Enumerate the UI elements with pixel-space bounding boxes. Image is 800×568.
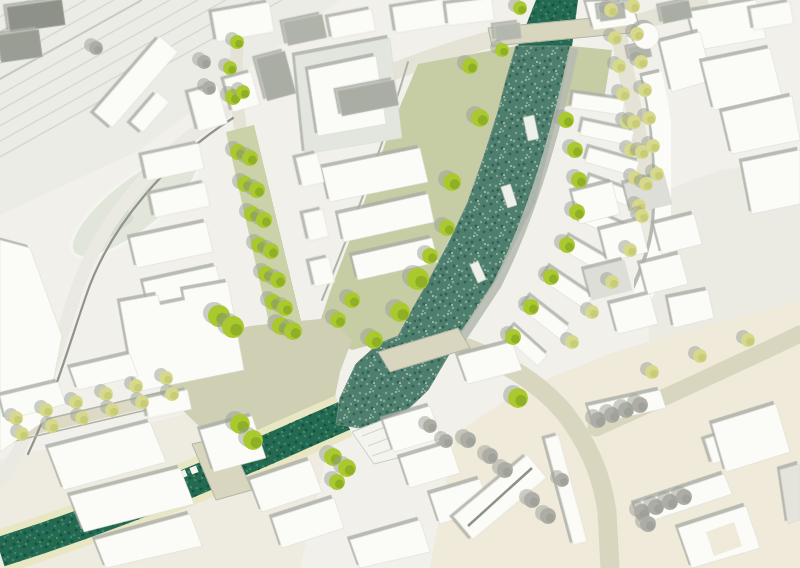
tree-crown-accent <box>503 468 512 477</box>
tree-crown-accent <box>610 280 618 288</box>
tree-crown-accent <box>746 338 754 346</box>
tree-crown-accent <box>50 424 58 432</box>
tree-crown-accent <box>255 188 264 197</box>
tree-crown-accent <box>549 275 558 284</box>
tree-crown-accent <box>682 495 691 504</box>
tree-crown-accent <box>372 337 382 347</box>
masterplan-svg <box>0 0 800 568</box>
tree-crown-accent <box>621 92 629 100</box>
tree-crown-accent <box>336 318 345 327</box>
tree-crown-accent <box>44 408 52 416</box>
tree-crown-accent <box>617 64 625 72</box>
tree-crown-accent <box>20 432 28 440</box>
tree-crown-accent <box>628 248 636 256</box>
tree-crown-accent <box>564 118 573 127</box>
tree-crown-accent <box>74 400 82 408</box>
tree-crown-accent <box>428 254 437 263</box>
tree-crown-accent <box>631 4 639 12</box>
tree-crown-accent <box>518 6 526 14</box>
tree-crown-accent <box>202 60 210 68</box>
tree-crown-accent <box>516 395 527 406</box>
tree-crown-accent <box>500 48 508 56</box>
tree-crown-accent <box>590 310 598 318</box>
tree-crown-accent <box>560 478 568 486</box>
tree-crown-accent <box>647 116 655 124</box>
tree-crown-accent <box>104 392 112 400</box>
tree-crown-accent <box>164 376 172 384</box>
tree-crown-accent <box>635 32 643 40</box>
tree-crown-accent <box>170 392 178 400</box>
tree-crown-accent <box>80 416 88 424</box>
tree-crown-accent <box>110 408 118 416</box>
tree-crown-accent <box>415 276 427 288</box>
tree-crown-accent <box>335 480 344 489</box>
tree-crown-accent <box>248 156 257 165</box>
tree-crown-accent <box>640 214 648 222</box>
tree-crown-accent <box>478 115 488 125</box>
building <box>0 29 43 63</box>
tree-crown-accent <box>639 60 647 68</box>
tree-crown-accent <box>445 226 454 235</box>
tree-crown-accent <box>466 438 475 447</box>
tree-crown-accent <box>450 179 460 189</box>
tree-crown-accent <box>283 306 292 315</box>
tree-crown-accent <box>640 150 648 158</box>
tree-crown-accent <box>613 36 621 44</box>
tree-crown-accent <box>251 437 262 448</box>
tree-crown-accent <box>350 298 359 307</box>
tree-crown-accent <box>398 309 409 320</box>
tree-crown-accent <box>632 120 640 128</box>
tree-crown-accent <box>529 305 538 314</box>
building <box>494 22 522 41</box>
tree-crown-accent <box>643 88 651 96</box>
tree-crown-accent <box>530 498 539 507</box>
tree-crown-accent <box>235 40 243 48</box>
tree-crown-accent <box>575 210 584 219</box>
tree-crown-accent <box>698 354 706 362</box>
tree-crown-accent <box>468 64 477 73</box>
tree-crown-accent <box>262 218 271 227</box>
tree-crown-accent <box>546 514 555 523</box>
tree-crown-accent <box>565 243 574 252</box>
tree-crown-accent <box>570 340 578 348</box>
tree-crown-accent <box>269 249 278 258</box>
tree-crown-accent <box>230 324 242 336</box>
tree-crown-accent <box>650 370 658 378</box>
tree-crown-accent <box>140 400 148 408</box>
tree-crown-accent <box>276 278 285 287</box>
tree-crown-accent <box>609 8 617 16</box>
tree-crown-accent <box>94 46 102 54</box>
tree-crown-accent <box>651 144 659 152</box>
tree-crown-accent <box>291 328 301 338</box>
tree-crown-accent <box>638 403 647 412</box>
tree-crown-accent <box>207 86 215 94</box>
tree-crown-accent <box>428 424 436 432</box>
tree-crown-accent <box>345 465 355 475</box>
tree-crown-accent <box>573 148 582 157</box>
tree-crown-accent <box>644 182 652 190</box>
tree-crown-accent <box>134 384 142 392</box>
tree-crown-accent <box>241 90 249 98</box>
tree-crown-accent <box>655 172 663 180</box>
tree-crown-accent <box>228 66 236 74</box>
tree-crown-accent <box>14 416 22 424</box>
masterplan-canvas <box>0 0 800 568</box>
tree-crown-accent <box>577 178 586 187</box>
tree-crown-accent <box>511 335 520 344</box>
tree-crown-accent <box>444 439 452 447</box>
tree-crown-accent <box>646 522 655 531</box>
